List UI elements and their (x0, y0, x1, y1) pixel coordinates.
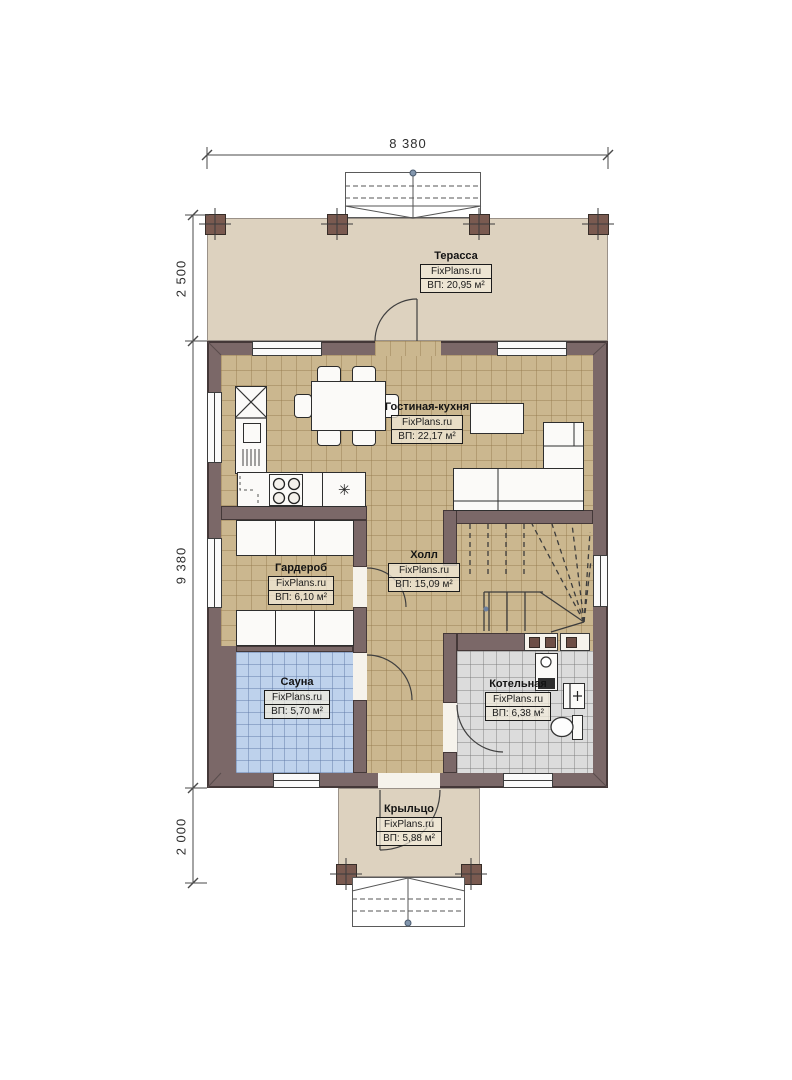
boiler-door-opening (443, 703, 457, 752)
stove (269, 474, 303, 506)
ledge-post (545, 637, 556, 648)
sink-icon: ✳ (338, 481, 351, 499)
wall-hall-boiler (443, 633, 457, 703)
wardrobe-closet-bottom (236, 610, 354, 646)
room-info-wardrobe: FixPlans.ru ВП: 6,10 м² (268, 576, 334, 605)
room-label-living: Гостиная-кухня FixPlans.ru ВП: 22,17 м² (367, 401, 487, 444)
sauna-side-wall (221, 646, 237, 773)
window-wardrobe-west (207, 538, 222, 608)
wall-hall-boiler (443, 752, 457, 773)
wall-boiler-top (457, 633, 525, 651)
watermark-text: FixPlans.ru (486, 693, 550, 707)
wall-wardrobe-sauna (236, 646, 353, 652)
window-kitchen-north (252, 341, 322, 356)
floor-plan: 8 380 2 500 9 380 2 000 (0, 0, 792, 1080)
room-label-porch: Крыльцо FixPlans.ru ВП: 5,88 м² (349, 803, 469, 846)
window-living-north (497, 341, 567, 356)
room-info-sauna: FixPlans.ru ВП: 5,70 м² (264, 690, 330, 719)
terrace-post (469, 214, 490, 235)
dining-chair (294, 394, 312, 418)
room-label-sauna: Сауна FixPlans.ru ВП: 5,70 м² (237, 676, 357, 719)
terrace-post (205, 214, 226, 235)
room-title-hall: Холл (364, 549, 484, 561)
watermark-text: FixPlans.ru (421, 265, 490, 279)
ledge-post (529, 637, 540, 648)
room-title-sauna: Сауна (237, 676, 357, 688)
room-title-boiler: Котельная (458, 678, 578, 690)
ledge-post (566, 637, 577, 648)
room-title-living: Гостиная-кухня (367, 401, 487, 413)
watermark-text: FixPlans.ru (265, 691, 329, 705)
sofa-seat (453, 468, 584, 511)
dimension-porch-depth: 2 000 (174, 807, 189, 867)
room-info-terrace: FixPlans.ru ВП: 20,95 м² (420, 264, 491, 293)
porch-steps (352, 877, 465, 927)
room-title-wardrobe: Гардероб (241, 562, 361, 574)
window-kitchen-west (207, 392, 222, 463)
terrace-post (327, 214, 348, 235)
dimension-house-depth: 9 380 (174, 536, 189, 596)
terrace-post (588, 214, 609, 235)
room-area-wardrobe: ВП: 6,10 м² (269, 591, 333, 604)
room-area-sauna: ВП: 5,70 м² (265, 705, 329, 718)
watermark-text: FixPlans.ru (377, 818, 441, 832)
watermark-text: FixPlans.ru (389, 564, 458, 578)
terrace-steps (345, 172, 481, 218)
room-area-boiler: ВП: 6,38 м² (486, 707, 550, 720)
window-sauna-south (273, 773, 320, 788)
room-label-terrace: Терасса FixPlans.ru ВП: 20,95 м² (396, 250, 516, 293)
wardrobe-closet-top (236, 520, 354, 556)
porch-door-opening (378, 773, 440, 788)
room-area-porch: ВП: 5,88 м² (377, 832, 441, 845)
room-area-living: ВП: 22,17 м² (392, 430, 461, 443)
room-label-wardrobe: Гардероб FixPlans.ru ВП: 6,10 м² (241, 562, 361, 605)
window-stair-east (593, 555, 608, 607)
window-boiler-south (503, 773, 553, 788)
oven-appliance (243, 423, 261, 443)
dimension-terrace-depth: 2 500 (174, 249, 189, 309)
room-area-terrace: ВП: 20,95 м² (421, 279, 490, 292)
room-info-boiler: FixPlans.ru ВП: 6,38 м² (485, 692, 551, 721)
wall-living-hall (443, 510, 593, 524)
wall-kitchen-wardrobe (221, 506, 367, 520)
room-area-hall: ВП: 15,09 м² (389, 578, 458, 591)
terrace-door-threshold (375, 341, 441, 356)
room-label-boiler: Котельная FixPlans.ru ВП: 6,38 м² (458, 678, 578, 721)
watermark-text: FixPlans.ru (392, 416, 461, 430)
room-title-porch: Крыльцо (349, 803, 469, 815)
dimension-width: 8 380 (350, 136, 466, 151)
room-label-hall: Холл FixPlans.ru ВП: 15,09 м² (364, 549, 484, 592)
room-info-hall: FixPlans.ru ВП: 15,09 м² (388, 563, 459, 592)
room-title-terrace: Терасса (396, 250, 516, 262)
room-info-living: FixPlans.ru ВП: 22,17 м² (391, 415, 462, 444)
watermark-text: FixPlans.ru (269, 577, 333, 591)
room-info-porch: FixPlans.ru ВП: 5,88 м² (376, 817, 442, 846)
wall-wardrobe-hall (353, 607, 367, 653)
